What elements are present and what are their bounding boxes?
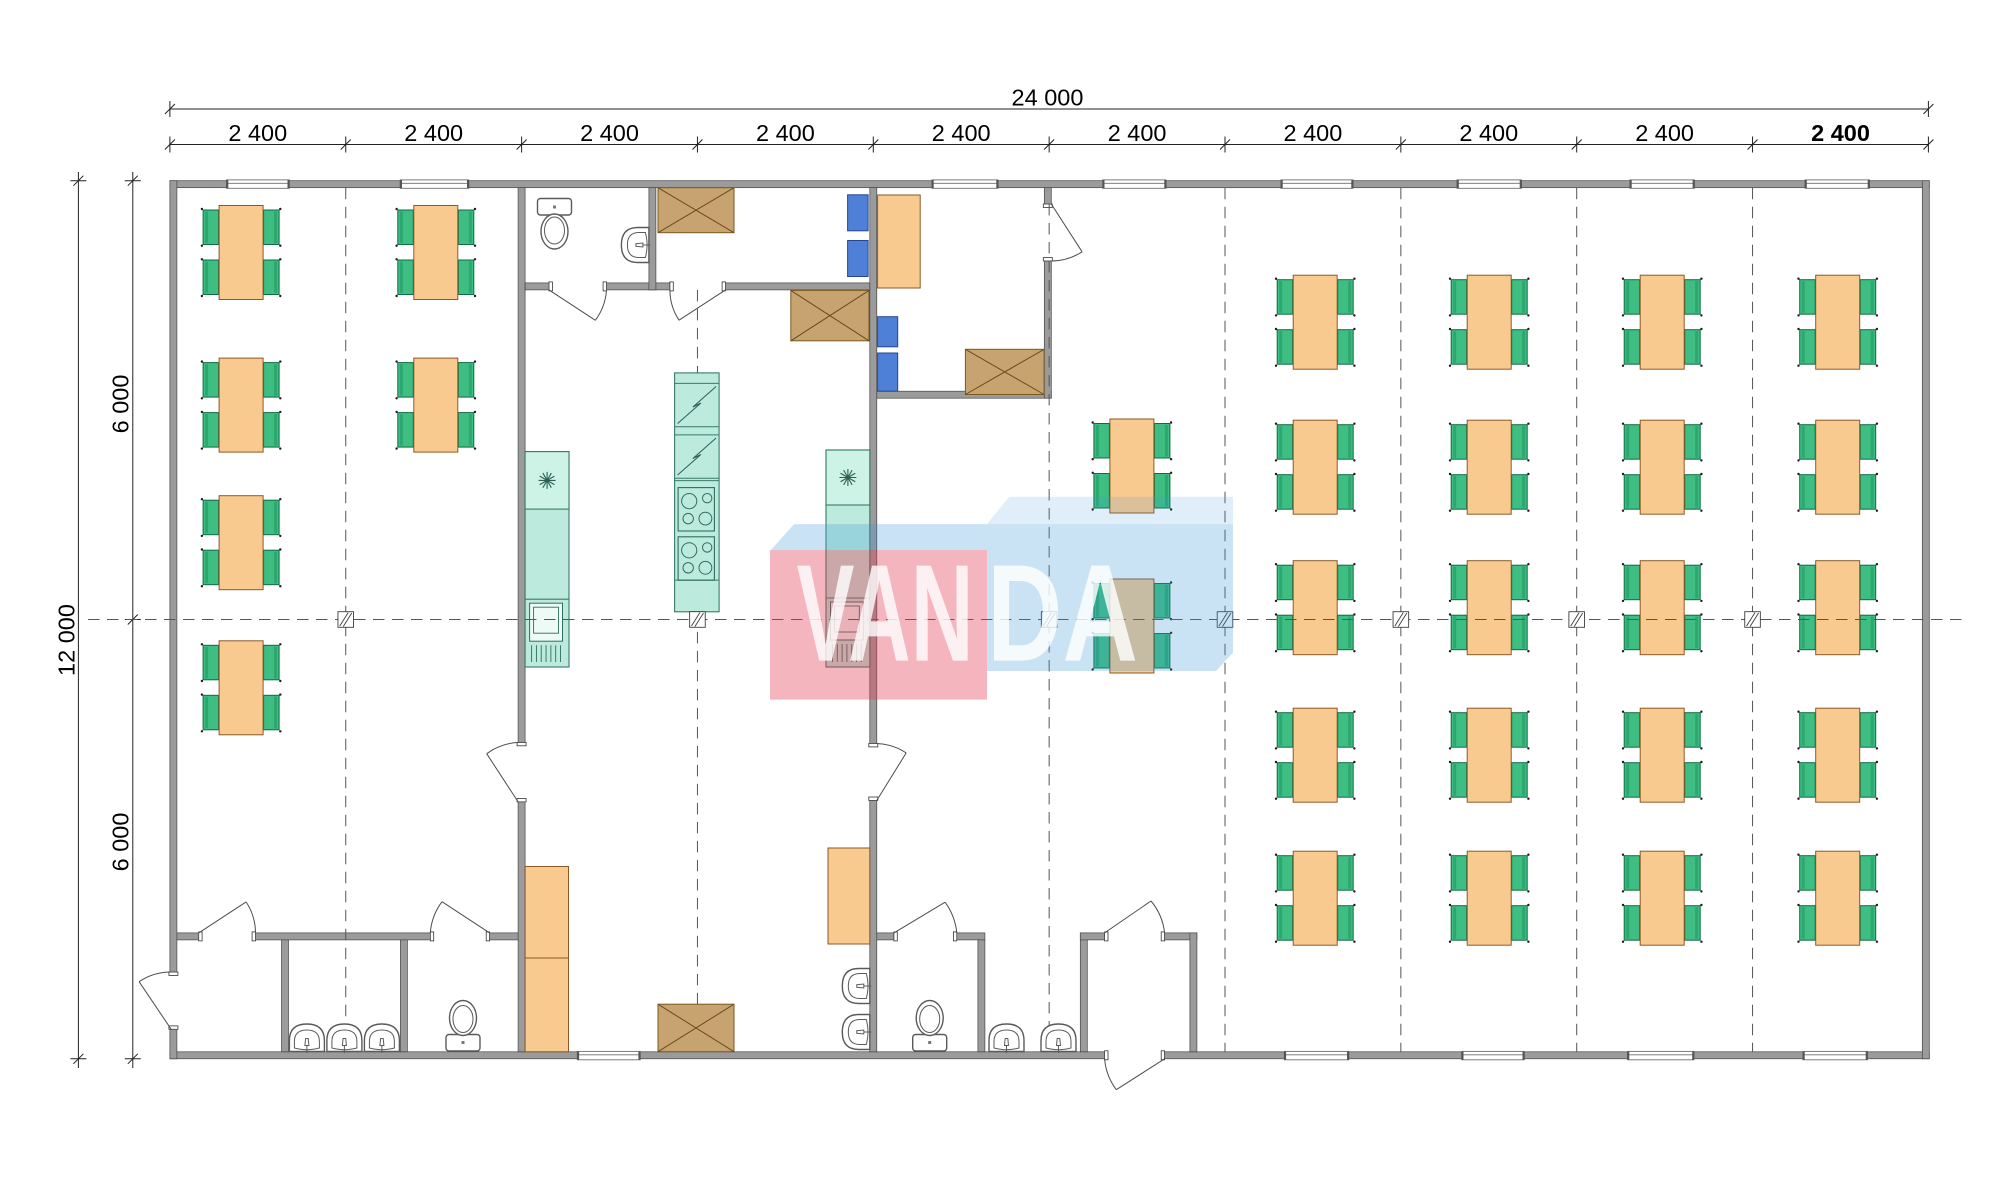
svg-text:2 400: 2 400: [932, 120, 991, 146]
svg-text:2 400: 2 400: [1811, 120, 1870, 146]
svg-text:2 400: 2 400: [228, 120, 287, 146]
svg-text:2 400: 2 400: [1635, 120, 1694, 146]
svg-text:2 400: 2 400: [1108, 120, 1167, 146]
svg-text:2 400: 2 400: [756, 120, 815, 146]
svg-text:6 000: 6 000: [108, 375, 134, 434]
svg-text:2 400: 2 400: [580, 120, 639, 146]
svg-text:DA: DA: [987, 537, 1138, 691]
svg-text:2 400: 2 400: [1283, 120, 1342, 146]
svg-text:2 400: 2 400: [1459, 120, 1518, 146]
svg-text:24 000: 24 000: [1012, 85, 1084, 111]
svg-text:6 000: 6 000: [108, 813, 134, 872]
svg-text:2 400: 2 400: [404, 120, 463, 146]
svg-text:VAN: VAN: [797, 537, 974, 691]
svg-text:12 000: 12 000: [54, 604, 80, 676]
